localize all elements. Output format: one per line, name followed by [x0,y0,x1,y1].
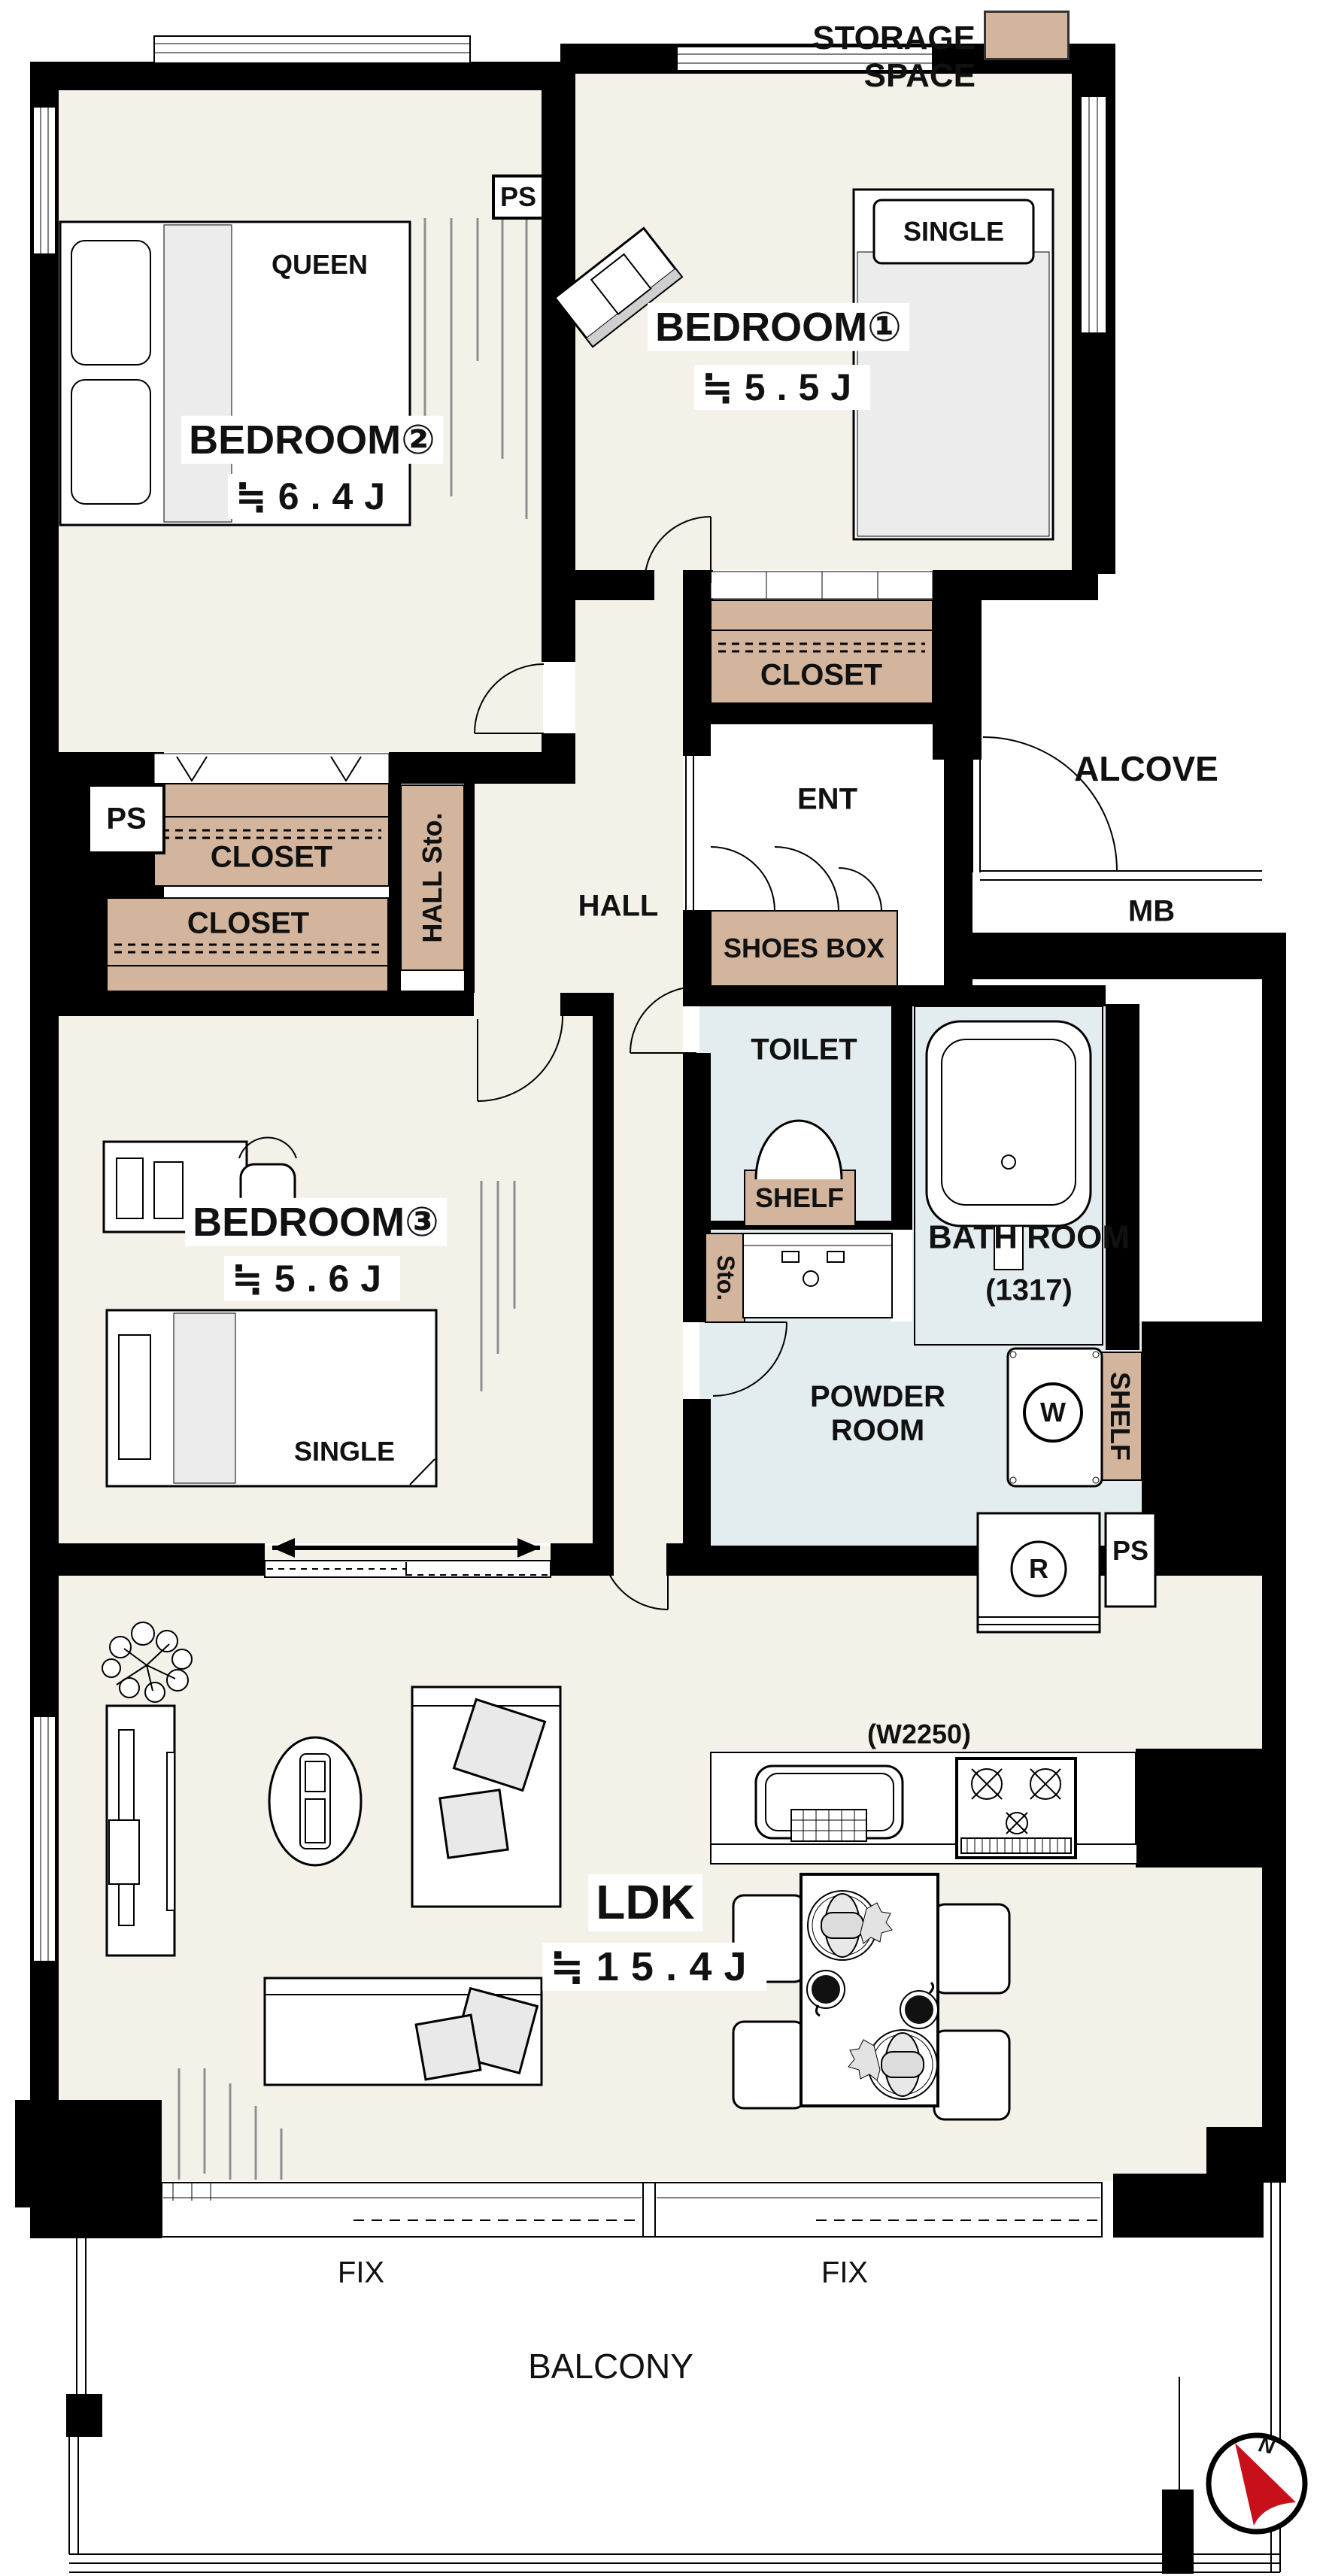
bathroom-label: BATH ROOM [928,1218,1130,1255]
small-storage-label: Sto. [712,1255,739,1300]
bathroom-size-label: (1317) [985,1274,1073,1308]
chair [733,2022,805,2108]
bathtub [927,1021,1091,1226]
shoes-box-label: SHOES BOX [724,933,884,963]
ps-top-label: PS [500,182,536,212]
bedroom1-side-window [1081,96,1106,333]
chair [934,1904,1009,1993]
bedroom3-name: BEDROOM③ [185,1198,447,1246]
floorplan-geometry [0,0,1329,2576]
tv-board [107,1706,174,1956]
entrance-label: ENT [797,783,857,817]
balcony-label: BALCONY [528,2347,693,2386]
fix-left-label: FIX [338,2256,384,2290]
single-bed1-label: SINGLE [903,217,1004,247]
bath-drain [1002,1155,1015,1169]
closet-hall-upper-label: CLOSET [211,841,332,875]
sofa-bench [265,1978,542,2085]
ps-kitchen-label: PS [1112,1536,1148,1566]
bedroom1-name: BEDROOM① [648,303,909,351]
fix-window-band [162,2183,1102,2237]
hall-label: HALL [578,890,659,924]
closet-hall-lower-label: CLOSET [187,907,309,941]
closet-bedroom1-label: CLOSET [760,659,882,693]
legend-swatch [984,11,1070,60]
alcove-label: ALCOVE [1074,750,1218,789]
chair [934,2031,1009,2119]
coffee-table [269,1737,361,1865]
toilet-label: TOILET [751,1033,857,1067]
bedroom1-size: ≒5.5J [694,365,870,410]
washer-label: W [1040,1397,1066,1428]
bedroom2-name: BEDROOM② [181,416,443,464]
window-mullion [643,2183,655,2237]
ldk-size: ≒15.4J [542,1943,766,1991]
toilet-shelf-label: SHELF [755,1183,844,1213]
floor-plan: STORAGE SPACE PS QUEEN BEDROOM② ≒6.4J BE… [0,0,1329,2576]
kitchen-width-label: (W2250) [867,1719,971,1749]
sofa [412,1687,560,1907]
ps-left-label: PS [106,803,146,836]
tv [167,1752,174,1910]
bedroom2-window [33,107,56,254]
bedroom3-size: ≒5.6J [224,1256,400,1301]
bay-window [154,36,470,63]
ldk-name: LDK [588,1874,702,1931]
closet-bedroom1 [711,600,933,630]
powder-shelf-label: SHELF [1105,1372,1135,1461]
refrigerator-label: R [1029,1554,1048,1584]
hall-storage-label: HALL Sto. [417,812,448,942]
ldk-side-window [33,1716,56,1962]
fix-right-label: FIX [821,2256,868,2290]
bedroom2-size: ≒6.4J [228,474,404,519]
powder-room-label: POWDER ROOM [810,1380,945,1448]
single-bed3-label: SINGLE [294,1437,395,1467]
meter-box-label: MB [1128,895,1175,929]
legend-label: STORAGE SPACE [741,20,976,95]
compass-icon [1209,2435,1305,2532]
closet-hall-upper [154,784,389,817]
queen-bed-label: QUEEN [272,250,368,280]
